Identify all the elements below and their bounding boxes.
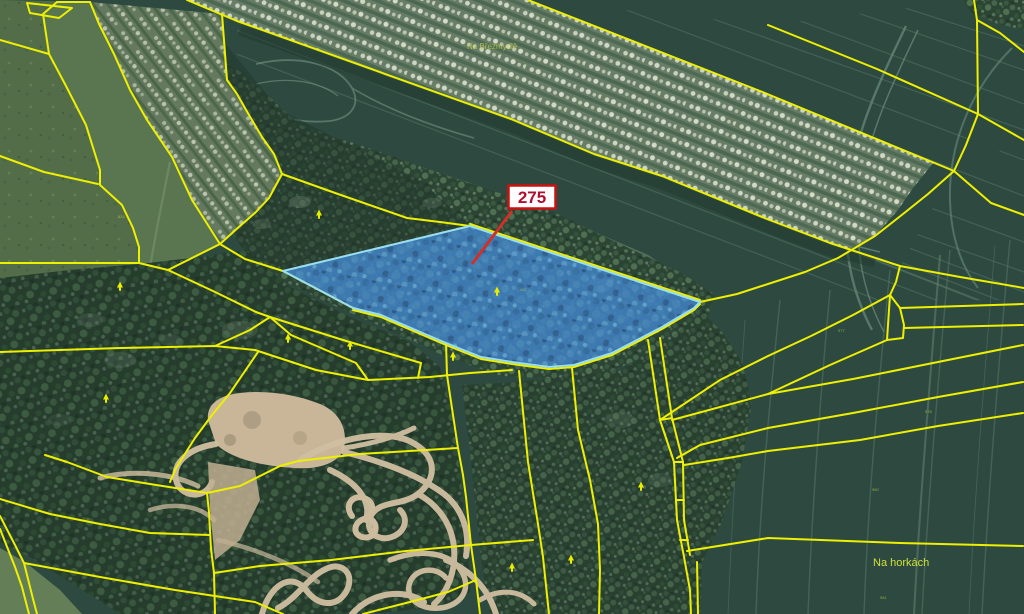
svg-text:981: 981 bbox=[880, 595, 887, 600]
svg-text:Na horkách: Na horkách bbox=[873, 557, 929, 569]
svg-text:980: 980 bbox=[872, 487, 879, 492]
svg-text:402: 402 bbox=[520, 287, 527, 292]
svg-text:134: 134 bbox=[118, 214, 125, 219]
svg-text:978: 978 bbox=[925, 409, 932, 414]
svg-text:275: 275 bbox=[518, 188, 546, 207]
svg-text:204: 204 bbox=[82, 516, 89, 521]
svg-text:977: 977 bbox=[838, 328, 845, 333]
svg-text:Na Březmydlě: Na Březmydlě bbox=[467, 42, 518, 51]
